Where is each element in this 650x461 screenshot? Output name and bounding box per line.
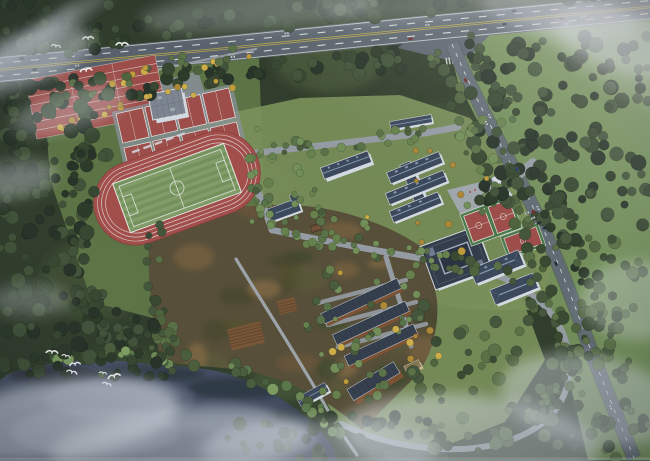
- aerial-rendering: [0, 0, 650, 461]
- vignette: [0, 0, 650, 461]
- campus-scene: [0, 0, 650, 461]
- bottom-edge-strip: [0, 458, 650, 461]
